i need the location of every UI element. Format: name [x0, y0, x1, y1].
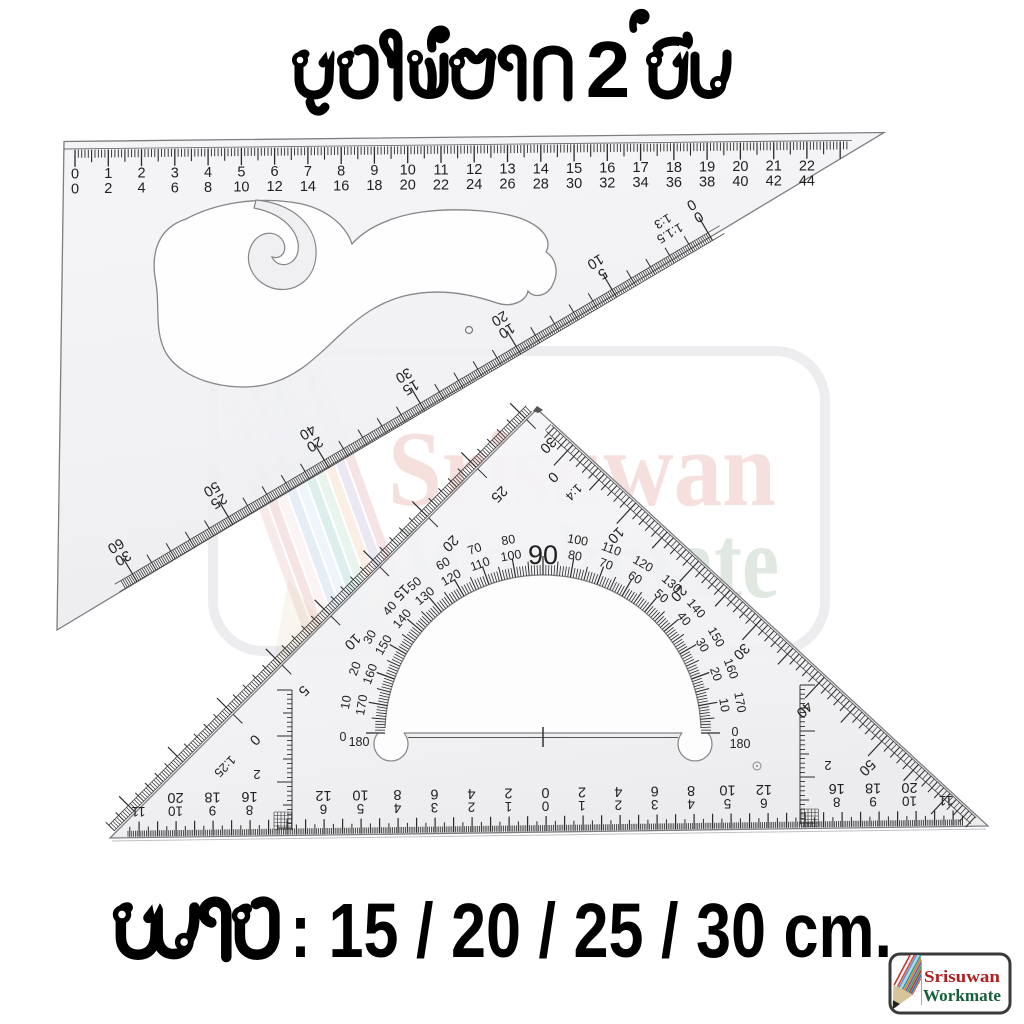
svg-text:20: 20	[901, 779, 917, 795]
svg-text:8: 8	[687, 782, 695, 798]
svg-text:3: 3	[651, 797, 659, 812]
svg-text:2: 2	[824, 758, 831, 773]
svg-text:34: 34	[633, 175, 649, 191]
svg-text:80: 80	[567, 548, 583, 564]
svg-text:18: 18	[366, 178, 382, 194]
svg-text:4: 4	[393, 801, 401, 816]
svg-text:10: 10	[352, 787, 368, 803]
svg-text:38: 38	[699, 174, 715, 190]
svg-text:2: 2	[586, 25, 631, 114]
svg-text:19: 19	[699, 159, 715, 175]
svg-text:2: 2	[253, 767, 260, 782]
svg-text:30: 30	[566, 176, 582, 192]
svg-text:5: 5	[237, 165, 245, 181]
svg-text:8: 8	[393, 786, 401, 802]
svg-text:2: 2	[137, 166, 145, 182]
svg-text:21: 21	[766, 159, 782, 175]
svg-text:1: 1	[104, 166, 112, 182]
svg-text:0: 0	[541, 784, 549, 800]
svg-text:10: 10	[233, 180, 249, 196]
svg-text:18: 18	[666, 160, 682, 176]
svg-text:Srisuwan: Srisuwan	[924, 967, 1000, 986]
svg-text:8: 8	[246, 803, 254, 818]
svg-text:4: 4	[137, 181, 145, 197]
svg-text:4: 4	[687, 797, 695, 812]
svg-text:40: 40	[732, 174, 748, 190]
svg-text:13: 13	[499, 162, 515, 178]
svg-text:6: 6	[430, 786, 438, 802]
svg-text:42: 42	[766, 174, 782, 190]
svg-text:20: 20	[167, 789, 183, 805]
svg-text:20: 20	[732, 159, 748, 175]
svg-text:36: 36	[666, 175, 682, 191]
svg-text:6: 6	[171, 180, 179, 196]
svg-text:80: 80	[500, 532, 516, 548]
svg-text:24: 24	[466, 177, 482, 193]
svg-text:0: 0	[542, 799, 550, 814]
svg-text:18: 18	[865, 780, 881, 796]
svg-text:22: 22	[799, 158, 815, 174]
svg-text:3: 3	[171, 165, 179, 181]
svg-text:15: 15	[566, 161, 582, 177]
svg-text:5: 5	[724, 796, 732, 811]
svg-text:8: 8	[204, 180, 212, 196]
svg-text:90: 90	[528, 540, 558, 570]
svg-text:Workmate: Workmate	[923, 986, 1001, 1005]
svg-text:180: 180	[349, 735, 370, 749]
svg-text:16: 16	[599, 161, 615, 177]
svg-text:28: 28	[533, 176, 549, 192]
svg-text:44: 44	[799, 173, 815, 189]
svg-text:12: 12	[315, 787, 331, 803]
svg-text:22: 22	[433, 177, 449, 193]
svg-text:2: 2	[104, 181, 112, 197]
svg-text:14: 14	[300, 179, 316, 195]
svg-text:11: 11	[433, 162, 448, 178]
svg-text:9: 9	[869, 794, 877, 809]
svg-text:26: 26	[499, 177, 515, 193]
svg-text:4: 4	[204, 165, 212, 181]
svg-text:2: 2	[615, 798, 623, 813]
svg-text:12: 12	[756, 781, 772, 797]
svg-text:2: 2	[578, 784, 586, 800]
svg-text:10: 10	[168, 804, 183, 819]
svg-text:2: 2	[504, 785, 512, 801]
svg-text:0: 0	[71, 166, 79, 182]
svg-text:8: 8	[337, 164, 345, 180]
svg-text:9: 9	[209, 803, 217, 818]
svg-text:1: 1	[578, 798, 586, 813]
svg-text:6: 6	[271, 164, 279, 180]
svg-text:16: 16	[333, 179, 349, 195]
svg-text:12: 12	[466, 162, 482, 178]
svg-text:10: 10	[338, 694, 354, 710]
svg-text:2: 2	[468, 800, 476, 815]
svg-text:16: 16	[241, 788, 257, 804]
svg-text:10: 10	[719, 782, 735, 798]
svg-text:6: 6	[320, 802, 328, 817]
svg-text:10: 10	[716, 697, 732, 713]
svg-text:20: 20	[400, 178, 416, 194]
svg-text:3: 3	[431, 800, 439, 815]
svg-text:4: 4	[614, 783, 622, 799]
svg-text:4: 4	[467, 785, 475, 801]
svg-text:180: 180	[730, 737, 751, 751]
svg-text:16: 16	[829, 780, 845, 796]
svg-text:14: 14	[533, 161, 549, 177]
svg-text:8: 8	[833, 795, 841, 810]
svg-text:1: 1	[505, 799, 513, 814]
svg-text:0: 0	[71, 181, 79, 197]
svg-text:32: 32	[599, 176, 615, 192]
svg-text:17: 17	[633, 160, 649, 176]
svg-text:10: 10	[902, 794, 917, 809]
svg-text:7: 7	[304, 164, 312, 180]
svg-text:12: 12	[267, 179, 283, 195]
svg-text:5: 5	[357, 801, 365, 816]
svg-text:10: 10	[400, 163, 416, 179]
svg-text:6: 6	[651, 783, 659, 799]
svg-text:9: 9	[370, 163, 378, 179]
svg-text:18: 18	[204, 789, 220, 805]
svg-text:: 15 / 20 / 25 / 30 cm.: : 15 / 20 / 25 / 30 cm.	[290, 888, 892, 974]
svg-text:6: 6	[760, 796, 768, 811]
svg-text:0: 0	[340, 730, 347, 744]
